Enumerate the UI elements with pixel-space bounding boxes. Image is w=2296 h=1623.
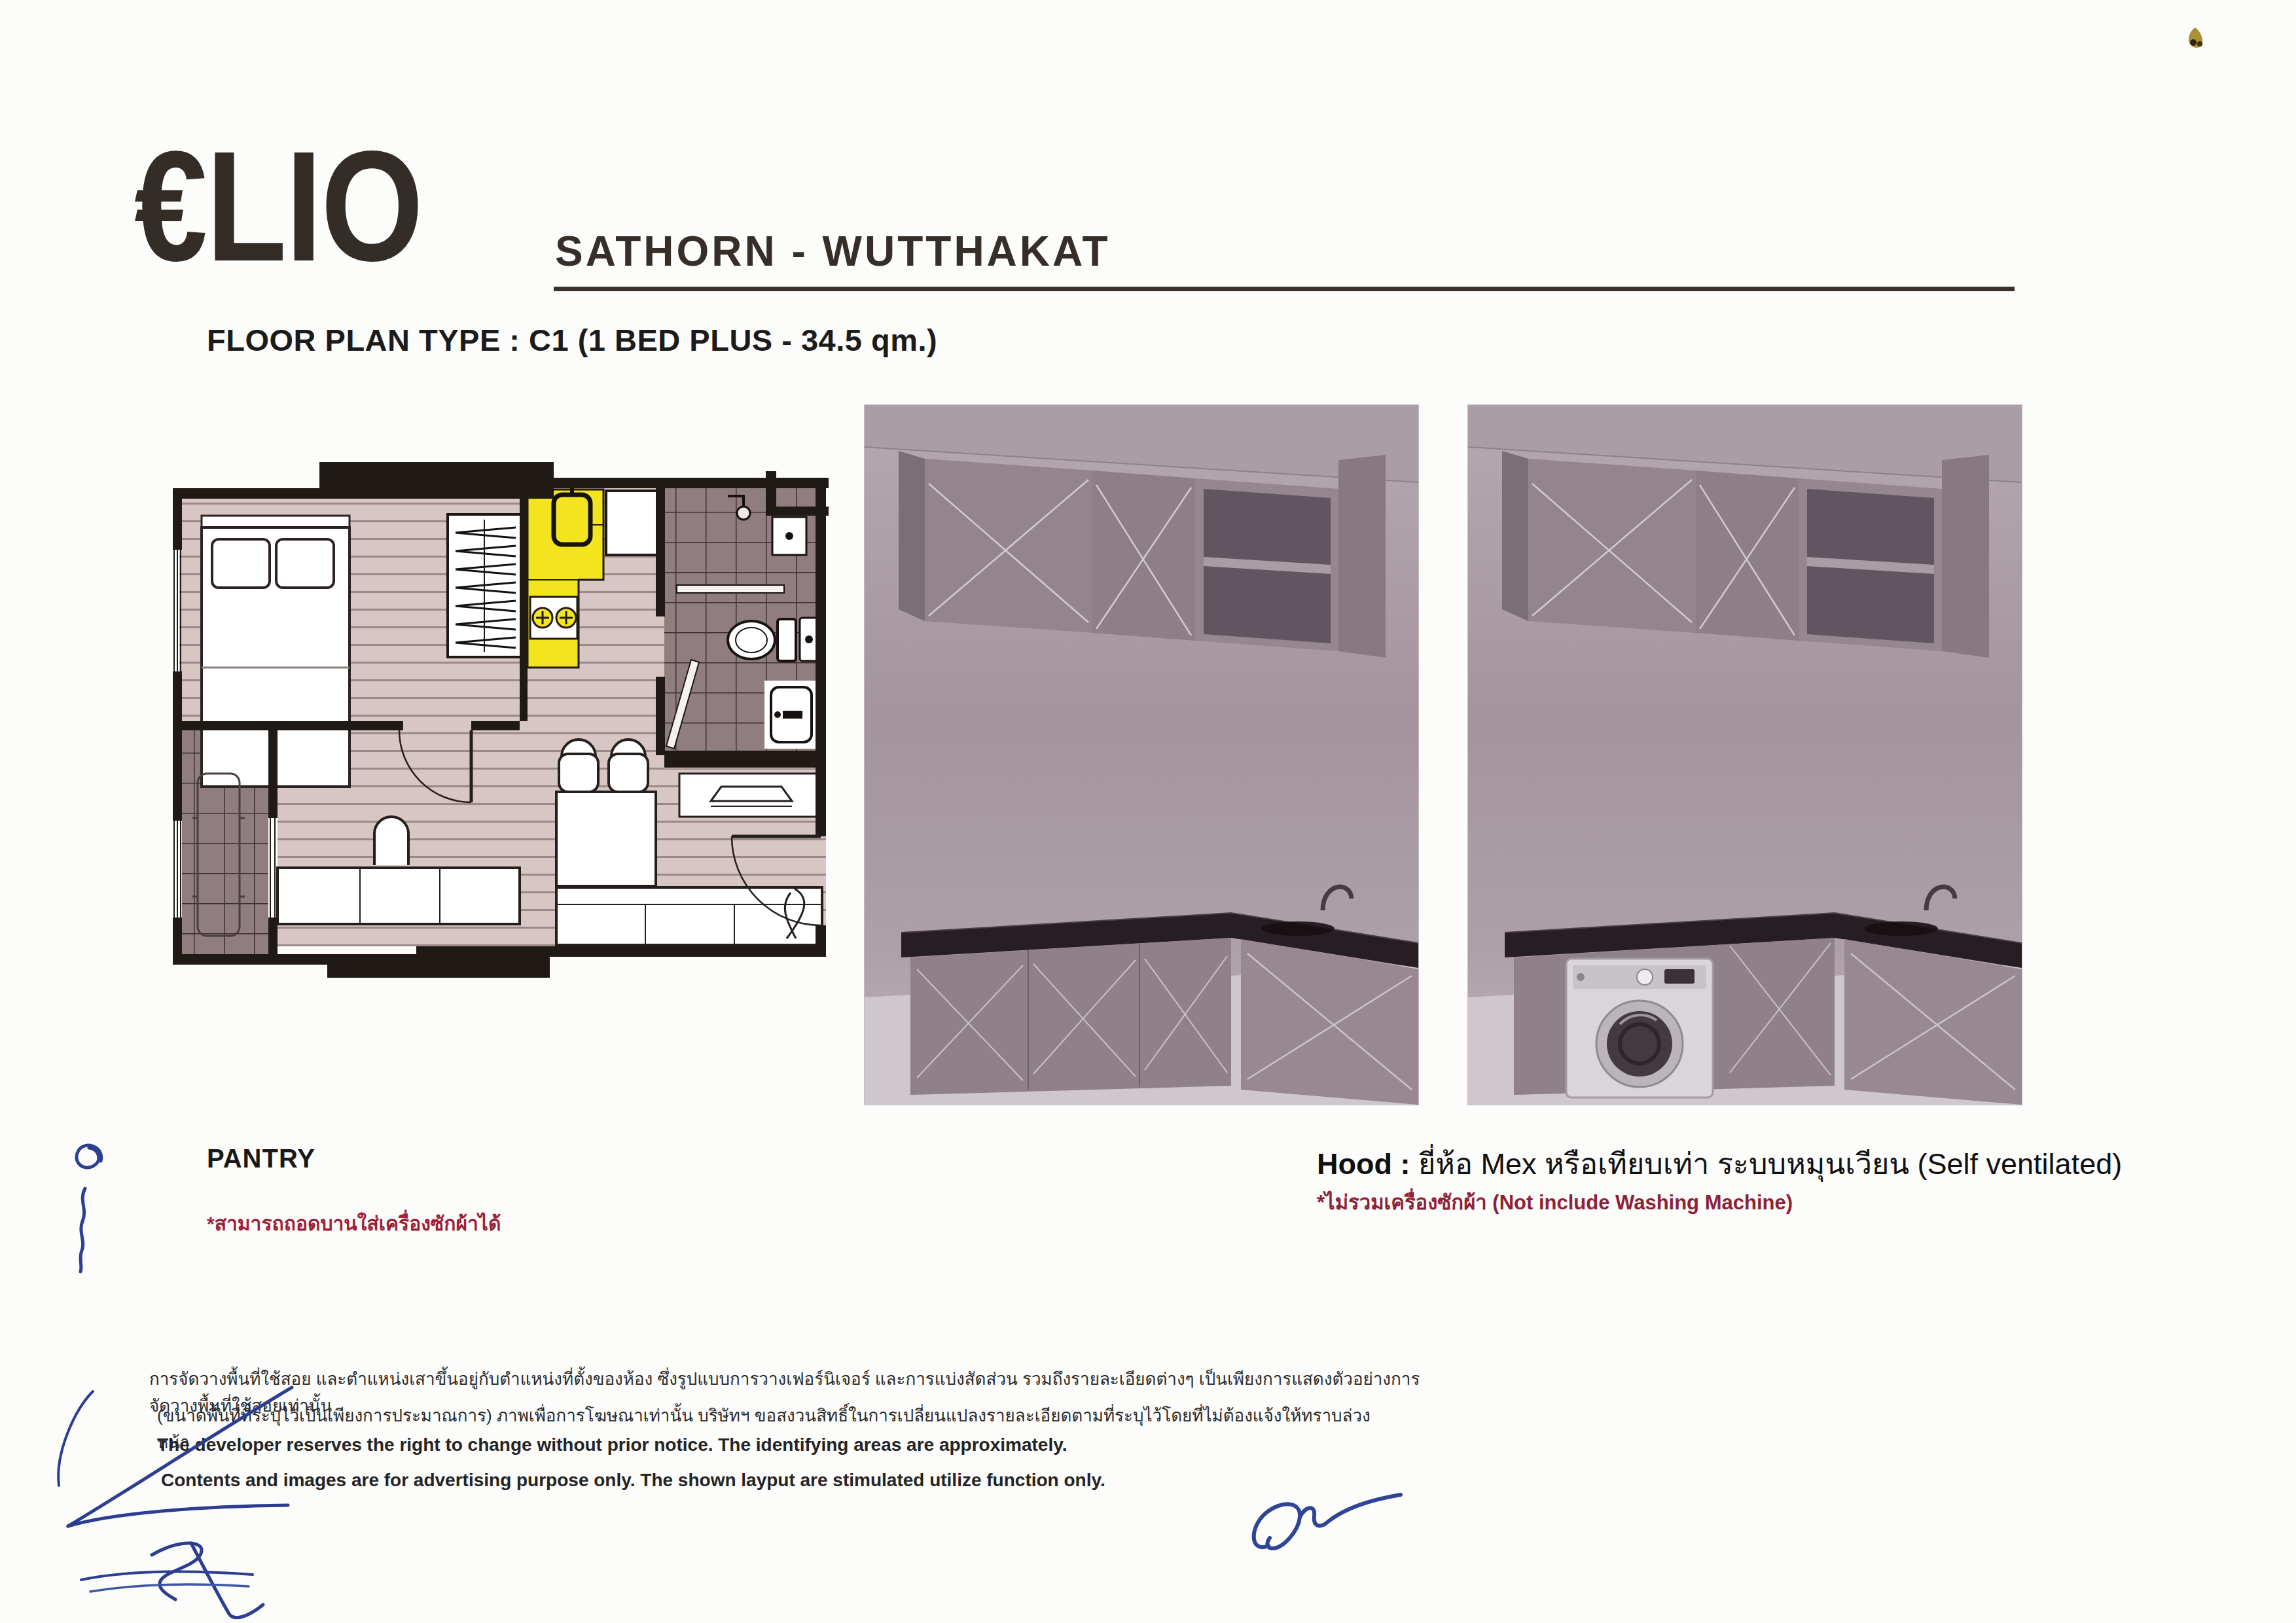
hood-note-thai: *ไม่รวมเครื่องซักผ้า [1317, 1191, 1487, 1214]
brochure-page: €LIO SATHORN - WUTTHAKAT FLOOR PLAN TYPE… [0, 0, 2296, 1623]
disclaimer-english-line2: Contents and images are for advertising … [161, 1470, 1105, 1491]
pantry-render-plain [864, 404, 1419, 1105]
sink [554, 495, 590, 544]
header-rule [554, 287, 2015, 291]
floor-plan-drawing [164, 452, 838, 982]
upper-cabinet-doors [925, 459, 1092, 633]
arch-niche [374, 817, 408, 865]
pen-initial-left [63, 1137, 115, 1275]
sink-recess [1261, 921, 1335, 936]
signature-bottom-left [52, 1381, 301, 1623]
hood-spec-line: Hood : ยี่ห้อ Mex หรือเทียบเท่า ระบบหมุน… [1317, 1140, 2122, 1187]
project-name: SATHORN - WUTTHAKAT [555, 230, 1111, 272]
toilet [728, 621, 775, 659]
shower-icon [737, 507, 750, 520]
pantry-caption: PANTRY [207, 1144, 315, 1173]
elio-logo: €LIO [134, 128, 422, 285]
scan-speck [2185, 25, 2207, 51]
hood-spec: ยี่ห้อ Mex หรือเทียบเท่า ระบบหมุนเวียน (… [1418, 1147, 2122, 1181]
shower-screen [677, 585, 784, 593]
planter-band [327, 954, 550, 978]
signature-bottom-middle [1244, 1489, 1415, 1563]
hood-label: Hood : [1317, 1147, 1410, 1181]
upper-cabinet-door-x [1092, 471, 1195, 641]
pantry-render-washer [1467, 404, 2022, 1105]
wardrobe [448, 514, 521, 657]
entry-console [679, 774, 822, 817]
hood-note-english: (Not include Washing Machine) [1492, 1191, 1793, 1214]
floor-plan-title: FLOOR PLAN TYPE : C1 (1 BED PLUS - 34.5 … [207, 322, 937, 358]
fridge-space [606, 491, 660, 555]
pantry-note-red: *สามารถถอดบานใส่เครื่องซักผ้าได้ [207, 1208, 501, 1239]
washing-machine [1566, 959, 1713, 1097]
hood-note-red: *ไม่รวมเครื่องซักผ้า (Not include Washin… [1317, 1186, 1793, 1219]
